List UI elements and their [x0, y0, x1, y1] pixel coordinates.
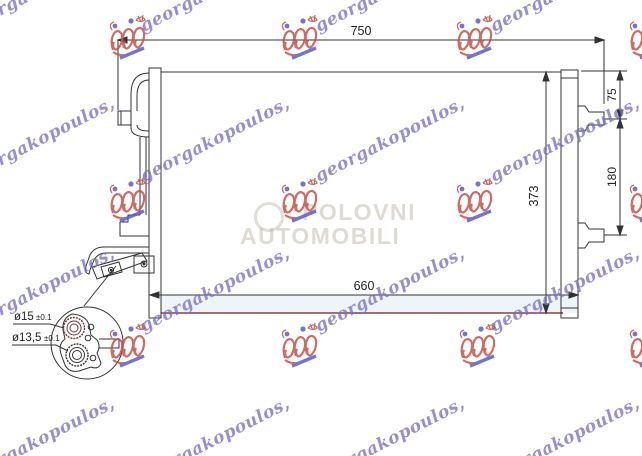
- right-tank: [561, 70, 578, 318]
- top-left-bracket: [118, 73, 149, 137]
- left-bracket-leg: [120, 137, 149, 236]
- dimension-180-label: 180: [605, 167, 619, 187]
- condenser-core: [161, 72, 561, 295]
- diameter-15-label: ø15: [14, 311, 34, 323]
- bottom-header: [161, 295, 578, 313]
- dimension-750: [118, 37, 604, 110]
- condenser-pipes: [85, 247, 149, 274]
- dimension-750-label: 750: [351, 24, 372, 38]
- diameter-135-label: ø13,5: [12, 332, 41, 344]
- detail-leader-line: [84, 266, 116, 306]
- dimension-75-label: 75: [605, 88, 619, 102]
- condenser-drawing: 750 660 373 75 180 ø15 ±0.1 ø13,5 ±0.1: [0, 0, 642, 456]
- upper-pipe-stub: [578, 106, 604, 131]
- dimension-373-label: 373: [527, 186, 541, 207]
- diameter-135-tolerance: ±0.1: [44, 334, 60, 343]
- pipe-mounting-bracket: [92, 253, 154, 279]
- leader-o135: [12, 345, 68, 351]
- diameter-15-tolerance: ±0.1: [36, 313, 52, 322]
- detail-view-circle: [51, 307, 123, 379]
- lower-pipe-stub: [578, 223, 604, 248]
- dimension-660-label: 660: [354, 279, 375, 293]
- upper-fitting: [64, 318, 85, 339]
- technical-drawing-page: POLOVNI AUTOMOBILI: [0, 0, 642, 456]
- left-side-plate: [149, 68, 161, 318]
- lower-fitting: [66, 344, 88, 366]
- dimension-373: [543, 72, 549, 313]
